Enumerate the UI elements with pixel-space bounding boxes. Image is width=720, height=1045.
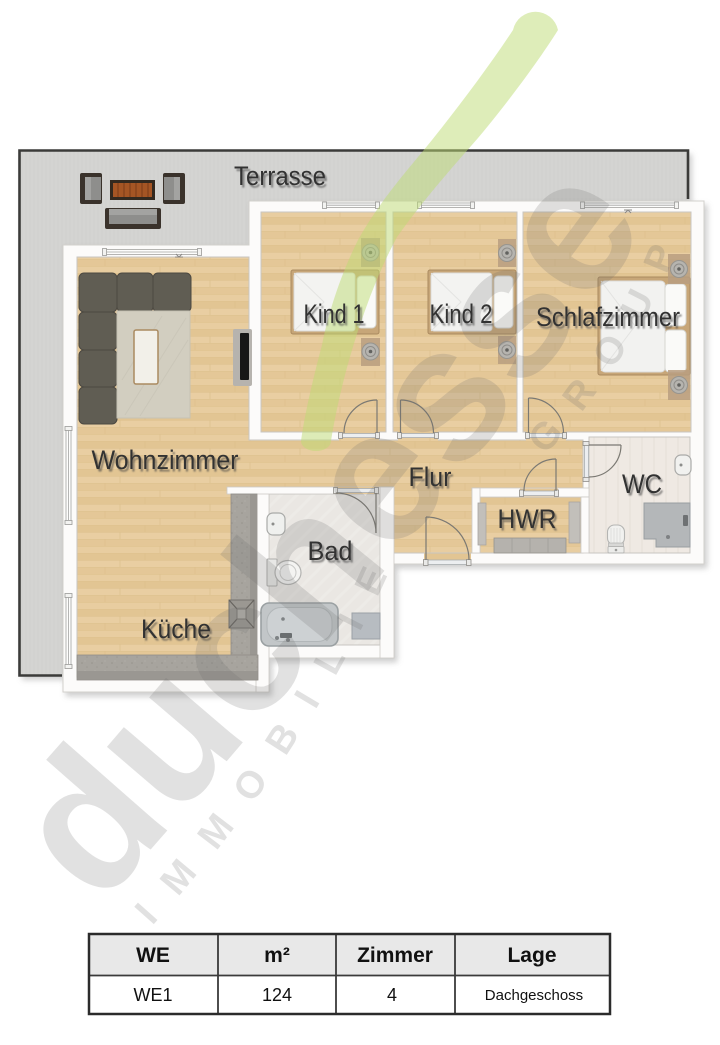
svg-text:Lage: Lage: [507, 944, 556, 967]
svg-text:Bad: Bad: [308, 536, 353, 566]
svg-text:Kind 2: Kind 2: [430, 299, 493, 329]
svg-text:Terrasse: Terrasse: [234, 161, 326, 191]
svg-text:HWR: HWR: [498, 504, 557, 534]
svg-text:WE1: WE1: [133, 985, 172, 1005]
svg-text:124: 124: [262, 985, 292, 1005]
svg-text:Wohnzimmer: Wohnzimmer: [92, 445, 239, 475]
svg-text:m²: m²: [264, 944, 290, 967]
svg-text:Flur: Flur: [409, 462, 452, 492]
svg-text:4: 4: [387, 985, 397, 1005]
svg-text:Zimmer: Zimmer: [357, 944, 433, 967]
svg-text:WC: WC: [622, 469, 662, 499]
svg-text:Küche: Küche: [141, 614, 211, 644]
svg-text:Kind 1: Kind 1: [304, 299, 365, 329]
svg-text:WE: WE: [136, 944, 170, 967]
svg-text:Schlafzimmer: Schlafzimmer: [536, 302, 680, 332]
svg-text:Dachgeschoss: Dachgeschoss: [485, 987, 583, 1004]
